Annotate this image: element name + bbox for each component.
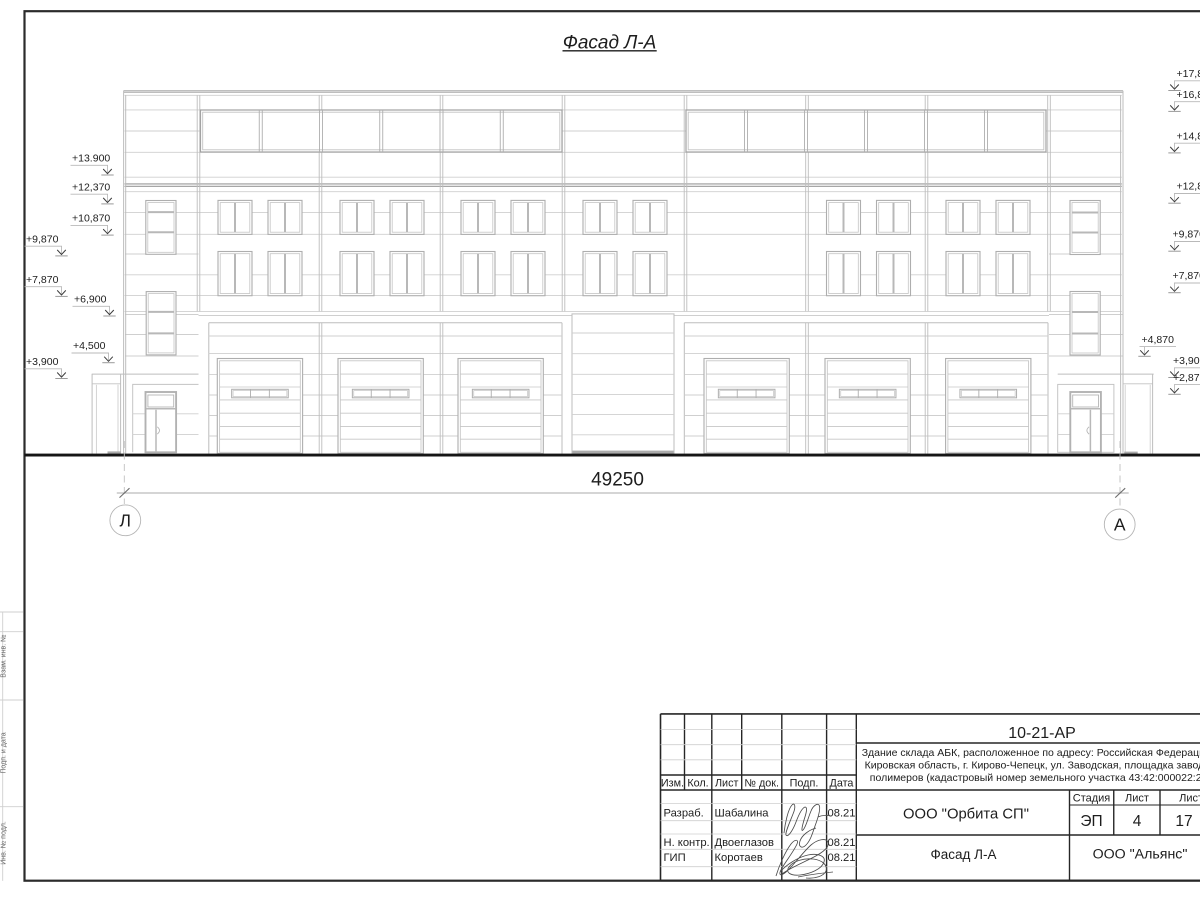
svg-text:Стадия: Стадия [1073,792,1111,804]
svg-text:Двоеглазов: Двоеглазов [715,837,775,849]
svg-text:Шабалина: Шабалина [715,807,770,819]
svg-text:Фасад Л-А: Фасад Л-А [930,847,996,862]
svg-text:+7,870: +7,870 [26,274,59,286]
svg-text:08.21: 08.21 [828,852,856,864]
svg-text:полимеров (кадастровый номер з: полимеров (кадастровый номер земельного … [870,772,1200,784]
svg-text:Подп. и дата: Подп. и дата [1,732,8,773]
svg-text:Дата: Дата [830,777,854,789]
svg-text:+12,370: +12,370 [72,181,110,193]
svg-text:Взам. инв. №: Взам. инв. № [1,634,8,677]
svg-text:+3,900: +3,900 [26,356,59,368]
svg-text:ЭП: ЭП [1080,813,1102,830]
svg-text:Подп.: Подп. [790,777,819,789]
svg-text:Лист: Лист [715,777,739,789]
svg-text:+9,870: +9,870 [26,233,59,245]
svg-text:Кол.: Кол. [687,777,708,789]
svg-text:49250: 49250 [591,470,644,491]
svg-text:ООО "Альянс": ООО "Альянс" [1093,846,1188,862]
svg-text:+16,870: +16,870 [1177,89,1200,101]
svg-text:10-21-АР: 10-21-АР [1008,725,1076,742]
svg-text:+13.900: +13.900 [72,153,110,165]
svg-text:Изм.: Изм. [661,777,684,789]
svg-text:Кировская область, г. Кирово-Ч: Кировская область, г. Кирово-Чепецк, ул.… [865,760,1200,772]
svg-text:Лист: Лист [1125,792,1149,804]
svg-text:Листов: Листов [1179,792,1200,804]
svg-text:+14,870: +14,870 [1177,130,1200,142]
svg-text:ГИП: ГИП [664,852,686,864]
svg-text:+17,870: +17,870 [1177,68,1200,80]
svg-text:+4,870: +4,870 [1142,334,1175,346]
svg-text:+6,900: +6,900 [74,294,107,306]
svg-text:Разраб.: Разраб. [664,807,704,819]
svg-text:Н. контр.: Н. контр. [664,837,710,849]
svg-text:+2,870: +2,870 [1173,372,1200,384]
svg-text:Л: Л [120,511,131,531]
svg-text:08.21: 08.21 [828,807,856,819]
svg-text:Инв. № подл.: Инв. № подл. [1,821,8,865]
svg-text:+9,870: +9,870 [1173,229,1200,241]
svg-text:ООО "Орбита СП": ООО "Орбита СП" [903,806,1029,822]
svg-text:А: А [1114,515,1126,535]
svg-text:4: 4 [1133,813,1142,830]
svg-text:+10,870: +10,870 [72,213,110,225]
svg-text:+4,500: +4,500 [73,340,106,352]
svg-text:Коротаев: Коротаев [715,852,763,864]
svg-text:Здание склада АБК, расположенн: Здание склада АБК, расположенное по адре… [862,747,1200,759]
svg-text:+7,870: +7,870 [1173,270,1200,282]
svg-text:17: 17 [1175,813,1192,830]
svg-text:№ док.: № док. [744,777,779,789]
svg-text:08.21: 08.21 [828,837,856,849]
svg-text:+3,900: +3,900 [1173,355,1200,367]
svg-text:+12,870: +12,870 [1177,181,1200,193]
